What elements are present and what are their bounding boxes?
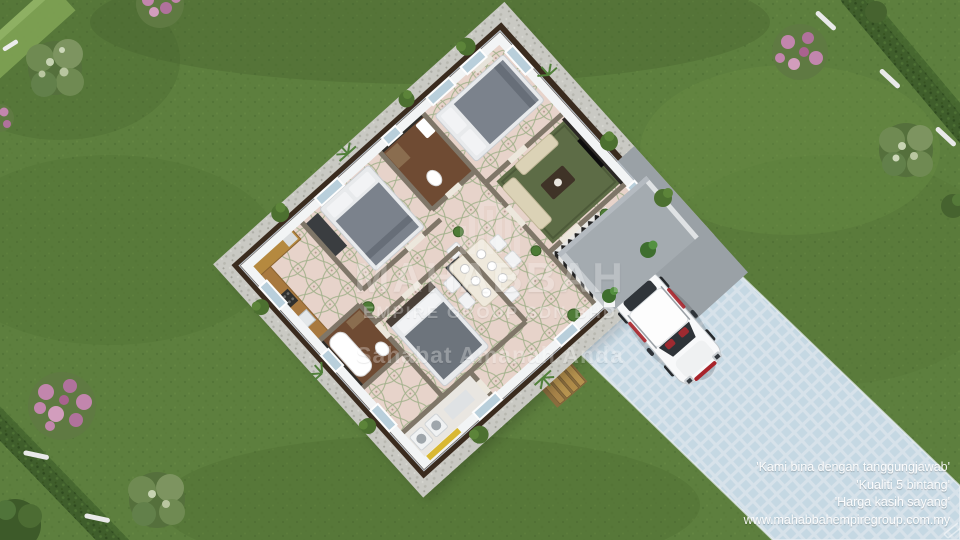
bush-pink-flowers (772, 24, 828, 80)
render-scene: MAHABBAH EMPIRE GROUP SDN BHD Sahabat Am… (0, 0, 960, 540)
footer-slogans: 'Kami bina dengan tanggungjawab' 'Kualit… (530, 459, 950, 529)
tree-pink-flowering (28, 372, 96, 440)
bush-white-green (879, 123, 933, 177)
footer-website: www.mahabbahempiregroup.com.my (530, 512, 950, 530)
footer-slogan-3: 'Harga kasih sayang' (530, 494, 950, 512)
bush-white-green (128, 472, 185, 528)
footer-slogan-1: 'Kami bina dengan tanggungjawab' (530, 459, 950, 477)
footer-slogan-2: 'Kualiti 5 bintang' (530, 477, 950, 495)
bush-white-green (26, 39, 84, 97)
bush-small (865, 1, 887, 23)
